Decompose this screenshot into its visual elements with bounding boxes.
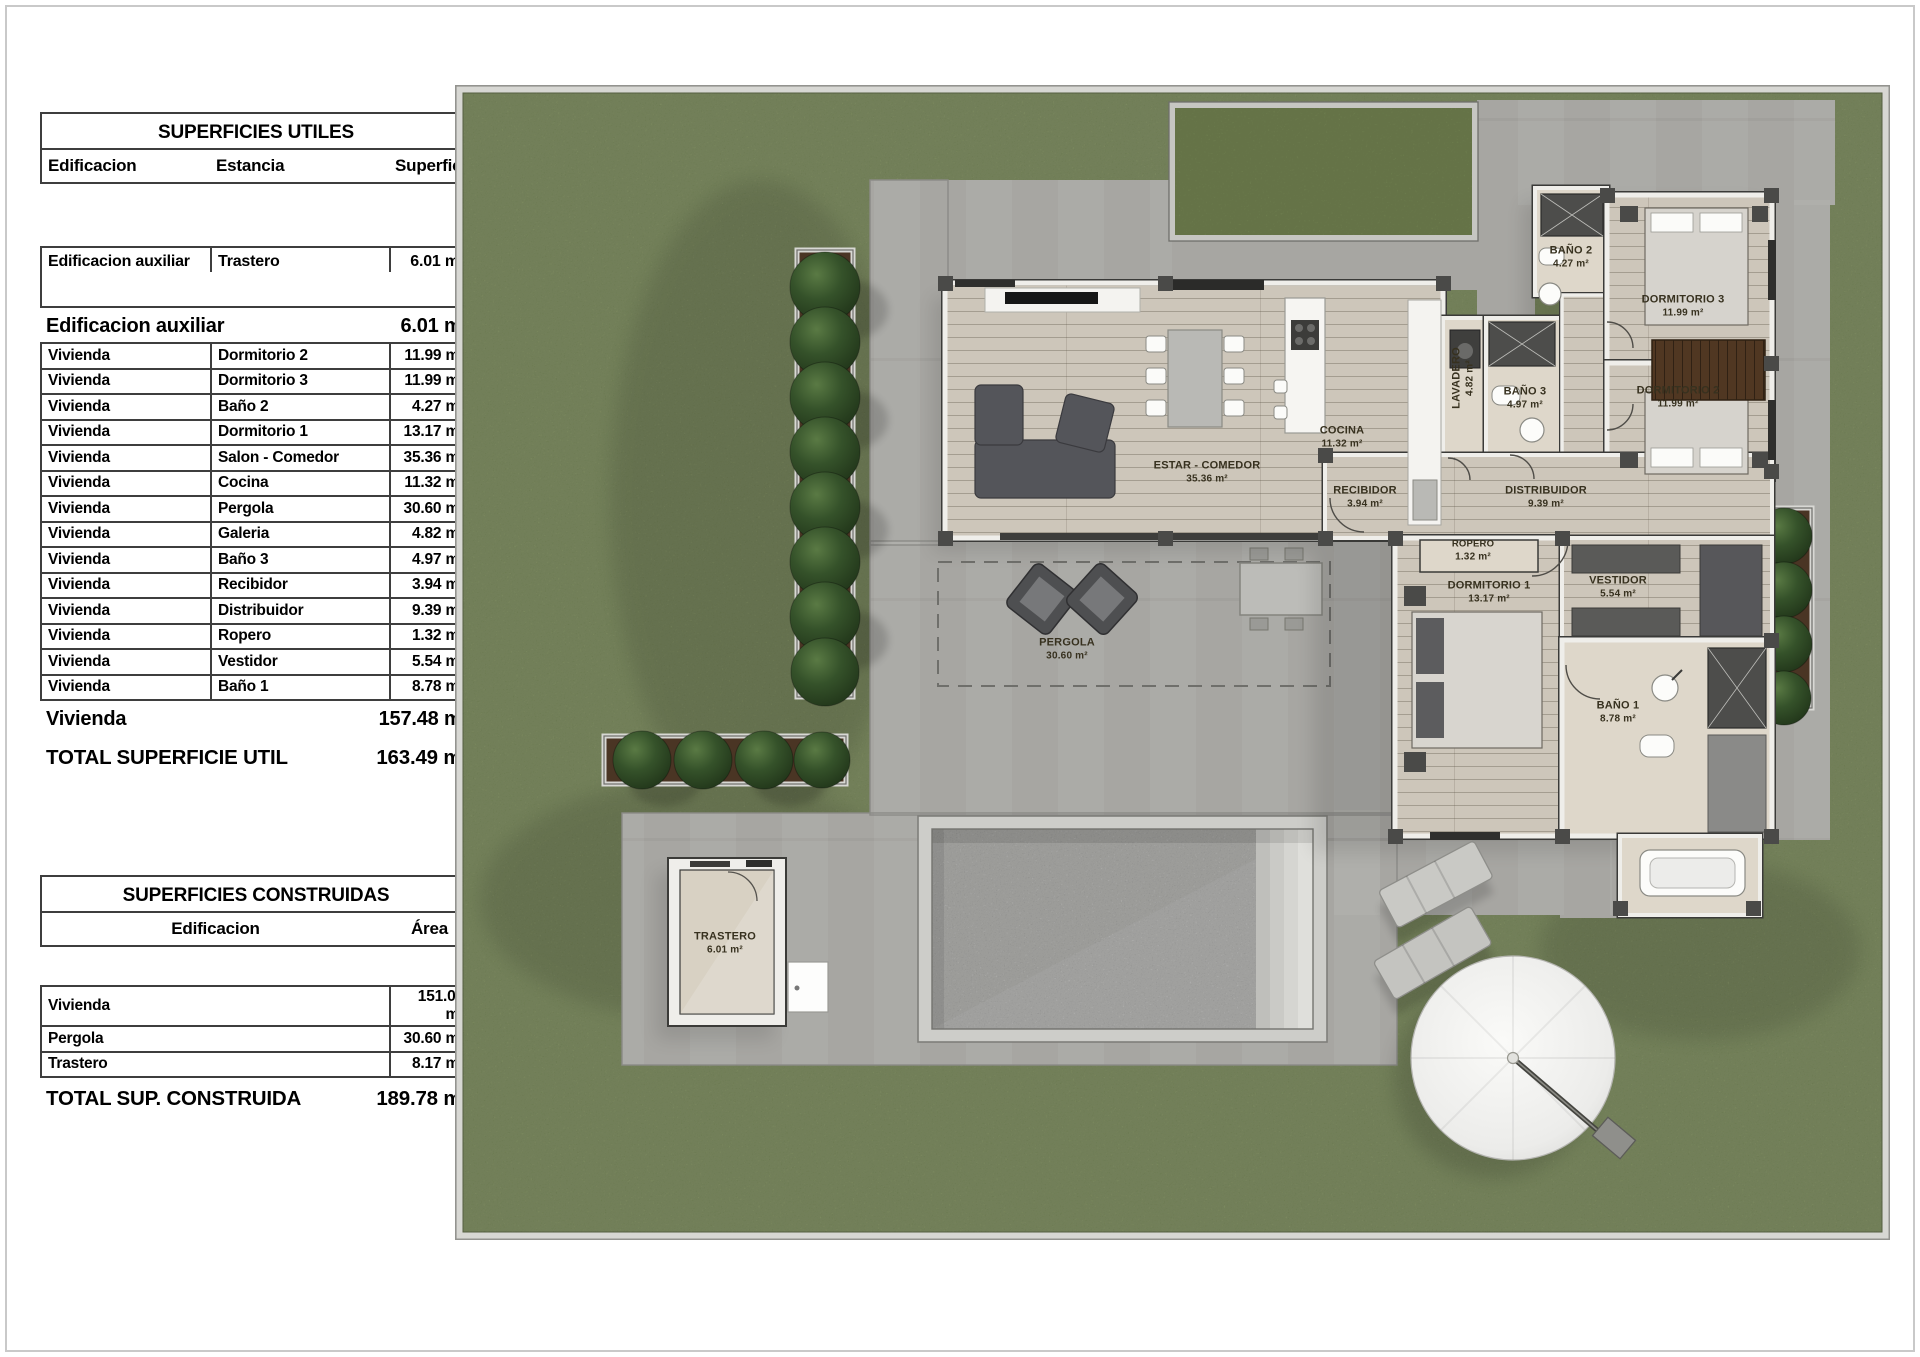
room-area: 4.97 m² [1504, 399, 1547, 412]
table-row: ViviendaRecibidor3.94 m² [40, 572, 472, 600]
table-gap [40, 947, 472, 987]
room-name: DISTRIBUIDOR [1505, 484, 1587, 496]
cell-edificacion: Vivienda [42, 473, 210, 493]
cell-estancia: Dormitorio 1 [210, 421, 389, 445]
cell-estancia: Dormitorio 3 [210, 370, 389, 394]
room-area: 1.32 m² [1452, 551, 1494, 564]
room-area: 6.01 m² [694, 944, 756, 957]
cell-edificacion: Vivienda [42, 422, 210, 442]
built-areas-title: SUPERFICIES CONSTRUIDAS [40, 875, 472, 913]
cell-edificacion: Vivienda [42, 575, 210, 595]
col-estancia: Estancia [210, 156, 389, 176]
cell-edificacion: Vivienda [42, 626, 210, 646]
built-areas-table: SUPERFICIES CONSTRUIDAS Edificacion Área… [40, 875, 472, 1120]
cell-estancia: Trastero [210, 248, 389, 272]
table-row: ViviendaGaleria4.82 m² [40, 521, 472, 549]
col-edificacion: Edificacion [42, 919, 389, 939]
cell-edificacion: Vivienda [42, 996, 389, 1016]
cell-edificacion: Vivienda [42, 601, 210, 621]
aux-total-row: Edificacion auxiliar 6.01 m² [40, 308, 472, 344]
cell-estancia: Pergola [210, 497, 389, 521]
room-area: 4.82 m² [1464, 347, 1477, 409]
cell-estancia: Ropero [210, 625, 389, 649]
useful-areas-header: Edificacion Estancia Superficie [40, 150, 472, 184]
room-label-estar: ESTAR - COMEDOR35.36 m² [1154, 458, 1261, 485]
cell-edificacion: Edificacion auxiliar [42, 248, 210, 272]
table-row: ViviendaBaño 34.97 m² [40, 546, 472, 574]
cell-estancia: Baño 3 [210, 548, 389, 572]
table-row: ViviendaDormitorio 311.99 m² [40, 368, 472, 396]
cell-edificacion: Vivienda [42, 652, 210, 672]
cell-estancia: Recibidor [210, 574, 389, 598]
table-row: ViviendaPergola30.60 m² [40, 495, 472, 523]
room-area: 4.27 m² [1550, 258, 1593, 271]
floor-plan-graphic [455, 85, 1890, 1240]
room-label-trastero: TRASTERO6.01 m² [694, 929, 756, 956]
pool [918, 816, 1327, 1042]
room-name: TRASTERO [694, 930, 756, 942]
room-label-dorm2: DORMITORIO 211.99 m² [1637, 383, 1720, 410]
table-row: ViviendaDormitorio 113.17 m² [40, 419, 472, 447]
cell-edificacion: Trastero [42, 1054, 389, 1074]
room-area: 9.39 m² [1505, 498, 1587, 511]
room-name: BAÑO 3 [1504, 385, 1547, 397]
cell-estancia: Vestidor [210, 650, 389, 674]
table-row: ViviendaSalon - Comedor35.36 m² [40, 444, 472, 472]
room-label-pergola: PERGOLA30.60 m² [1039, 635, 1095, 662]
vivienda-total-label: Vivienda [46, 708, 126, 731]
cell-edificacion: Vivienda [42, 371, 210, 391]
room-name: DORMITORIO 3 [1642, 293, 1725, 305]
table-row: ViviendaBaño 18.78 m² [40, 674, 472, 702]
built-total-row: TOTAL SUP. CONSTRUIDA 189.78 m² [40, 1078, 472, 1120]
room-label-cocina: COCINA11.32 m² [1320, 423, 1365, 450]
cell-edificacion: Vivienda [42, 397, 210, 417]
cell-edificacion: Vivienda [42, 499, 210, 519]
room-name: BAÑO 2 [1550, 244, 1593, 256]
table-row: Trastero8.17 m² [40, 1051, 472, 1079]
cell-estancia: Distribuidor [210, 599, 389, 623]
cell-estancia: Baño 1 [210, 676, 389, 700]
room-name: ESTAR - COMEDOR [1154, 459, 1261, 471]
room-area: 11.99 m² [1642, 307, 1725, 320]
cell-edificacion: Vivienda [42, 524, 210, 544]
table-row: ViviendaCocina11.32 m² [40, 470, 472, 498]
table-row: ViviendaBaño 24.27 m² [40, 393, 472, 421]
room-area: 35.36 m² [1154, 473, 1261, 486]
cell-estancia: Salon - Comedor [210, 446, 389, 470]
room-area: 5.54 m² [1589, 588, 1647, 601]
room-area: 11.32 m² [1320, 438, 1365, 451]
room-name: PERGOLA [1039, 636, 1095, 648]
room-area: 3.94 m² [1333, 498, 1397, 511]
vivienda-total-row: Vivienda 157.48 m² [40, 701, 472, 737]
room-name: BAÑO 1 [1597, 699, 1640, 711]
room-label-lavadero: LAVADERO4.82 m² [1449, 347, 1476, 409]
room-name: RECIBIDOR [1333, 484, 1397, 496]
room-area: 30.60 m² [1039, 650, 1095, 663]
col-edificacion: Edificacion [42, 156, 210, 176]
room-label-bano2: BAÑO 24.27 m² [1550, 243, 1593, 270]
room-label-ropero: ROPERO1.32 m² [1452, 538, 1494, 563]
room-label-recibidor: RECIBIDOR3.94 m² [1333, 483, 1397, 510]
cell-edificacion: Vivienda [42, 346, 210, 366]
room-name: VESTIDOR [1589, 574, 1647, 586]
table-row: Pergola30.60 m² [40, 1025, 472, 1053]
site-plan: ESTAR - COMEDOR35.36 m²COCINA11.32 m²LAV… [455, 85, 1890, 1240]
room-label-dorm1: DORMITORIO 113.17 m² [1448, 578, 1531, 605]
table-gap [40, 184, 472, 248]
aux-total-label: Edificacion auxiliar [46, 315, 224, 338]
inner-lawn [1169, 102, 1478, 241]
useful-areas-table: SUPERFICIES UTILES Edificacion Estancia … [40, 112, 472, 779]
room-label-bano1: BAÑO 18.78 m² [1597, 698, 1640, 725]
built-total-label: TOTAL SUP. CONSTRUIDA [46, 1087, 301, 1111]
cell-edificacion: Vivienda [42, 677, 210, 697]
cell-edificacion: Pergola [42, 1029, 389, 1049]
table-row: ViviendaVestidor5.54 m² [40, 648, 472, 676]
room-label-dorm3: DORMITORIO 311.99 m² [1642, 292, 1725, 319]
cell-estancia: Cocina [210, 472, 389, 496]
useful-total-label: TOTAL SUPERFICIE UTIL [46, 746, 288, 770]
room-name: LAVADERO [1450, 347, 1462, 409]
useful-areas-rows: ViviendaDormitorio 211.99 m²ViviendaDorm… [40, 342, 472, 701]
table-row: ViviendaRopero1.32 m² [40, 623, 472, 651]
useful-total-row: TOTAL SUPERFICIE UTIL 163.49 m² [40, 737, 472, 779]
room-name: COCINA [1320, 424, 1365, 436]
room-area: 11.99 m² [1637, 398, 1720, 411]
table-row: ViviendaDistribuidor9.39 m² [40, 597, 472, 625]
cell-estancia: Dormitorio 2 [210, 344, 389, 368]
room-label-bano3: BAÑO 34.97 m² [1504, 384, 1547, 411]
room-name: DORMITORIO 1 [1448, 579, 1531, 591]
cell-edificacion: Vivienda [42, 448, 210, 468]
table-row: ViviendaDormitorio 211.99 m² [40, 342, 472, 370]
room-area: 8.78 m² [1597, 713, 1640, 726]
table-row: Vivienda151.00 m² [40, 985, 472, 1027]
room-area: 13.17 m² [1448, 593, 1531, 606]
cell-estancia: Galeria [210, 523, 389, 547]
room-label-distribuidor: DISTRIBUIDOR9.39 m² [1505, 483, 1587, 510]
cell-edificacion: Vivienda [42, 550, 210, 570]
table-row-aux: Edificacion auxiliar Trastero 6.01 m² [40, 246, 472, 308]
built-areas-rows: Vivienda151.00 m²Pergola30.60 m²Trastero… [40, 985, 472, 1078]
room-name: ROPERO [1452, 538, 1494, 549]
cell-estancia: Baño 2 [210, 395, 389, 419]
useful-areas-title: SUPERFICIES UTILES [40, 112, 472, 150]
room-label-vestidor: VESTIDOR5.54 m² [1589, 573, 1647, 600]
room-name: DORMITORIO 2 [1637, 384, 1720, 396]
built-areas-header: Edificacion Área [40, 913, 472, 947]
